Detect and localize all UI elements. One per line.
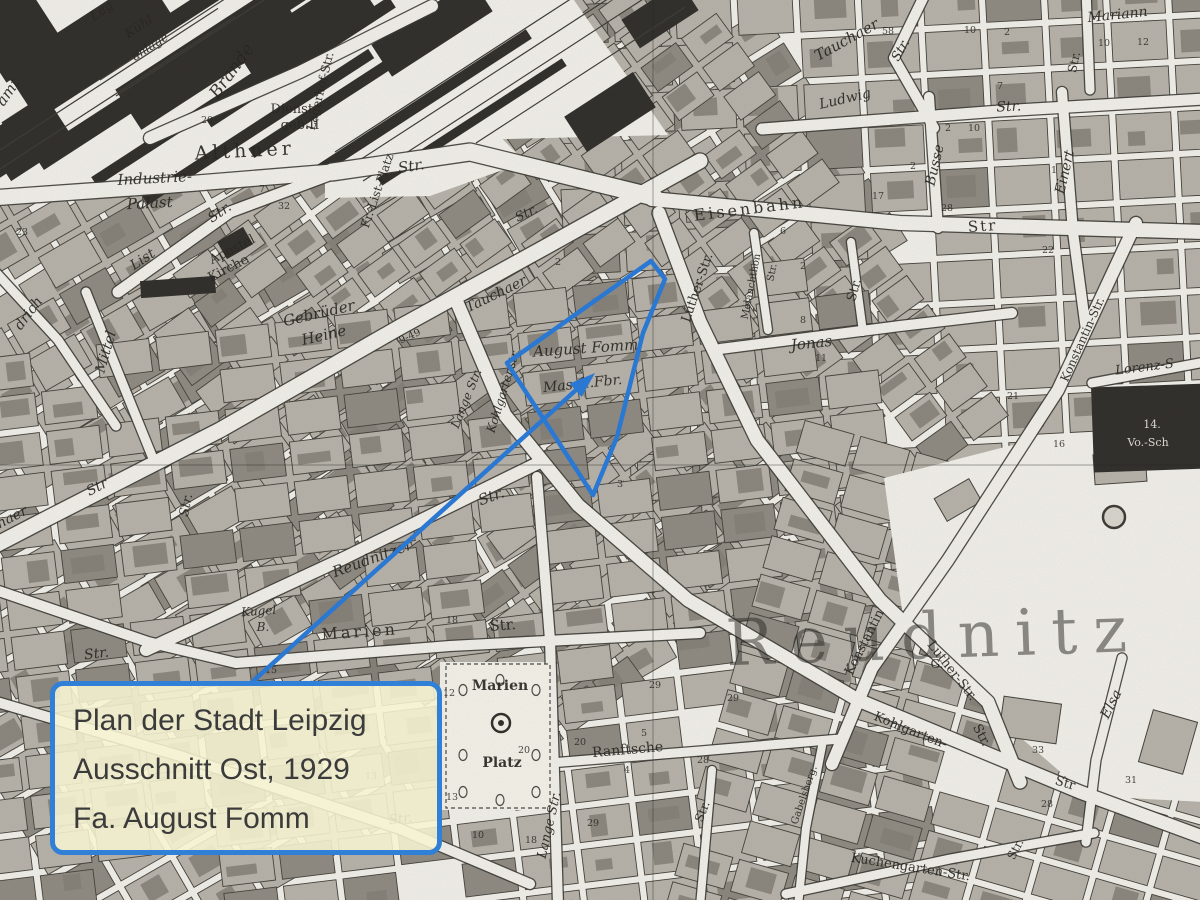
screenshot-stage: amtLagKühlanlageBrandeLagerhof-Str.Diens… xyxy=(0,0,1200,900)
caption-line-title: Plan der Stadt Leipzig xyxy=(73,696,419,745)
caption-line-detail: Ausschnitt Ost, 1929 xyxy=(73,745,419,794)
caption-line-company: Fa. August Fomm xyxy=(73,794,419,843)
caption-box: Plan der Stadt Leipzig Ausschnitt Ost, 1… xyxy=(50,681,442,855)
